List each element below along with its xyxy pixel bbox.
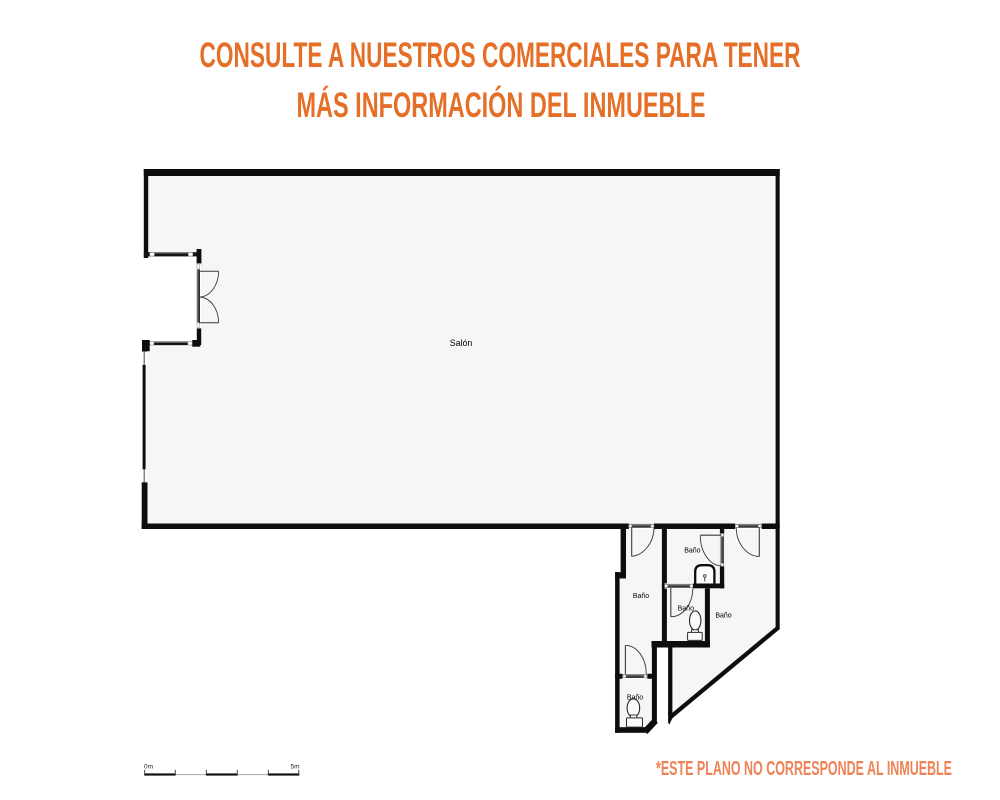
svg-text:CONSULTE A NUESTROS COMERCIALE: CONSULTE A NUESTROS COMERCIALES PARA TEN…: [200, 36, 801, 75]
svg-text:Baño: Baño: [684, 548, 700, 555]
svg-text:Salón: Salón: [450, 338, 473, 348]
svg-text:Baño: Baño: [715, 613, 731, 620]
svg-text:0m: 0m: [144, 764, 153, 771]
svg-text:*ESTE PLANO NO CORRESPONDE AL: *ESTE PLANO NO CORRESPONDE AL INMUEBLE: [656, 758, 952, 780]
svg-text:MÁS INFORMACIÓN DEL INMUEBLE: MÁS INFORMACIÓN DEL INMUEBLE: [297, 85, 706, 125]
svg-text:5m: 5m: [290, 764, 299, 771]
svg-text:Baño: Baño: [627, 695, 643, 702]
svg-text:Baño: Baño: [633, 593, 649, 600]
svg-text:Baño: Baño: [678, 605, 694, 612]
